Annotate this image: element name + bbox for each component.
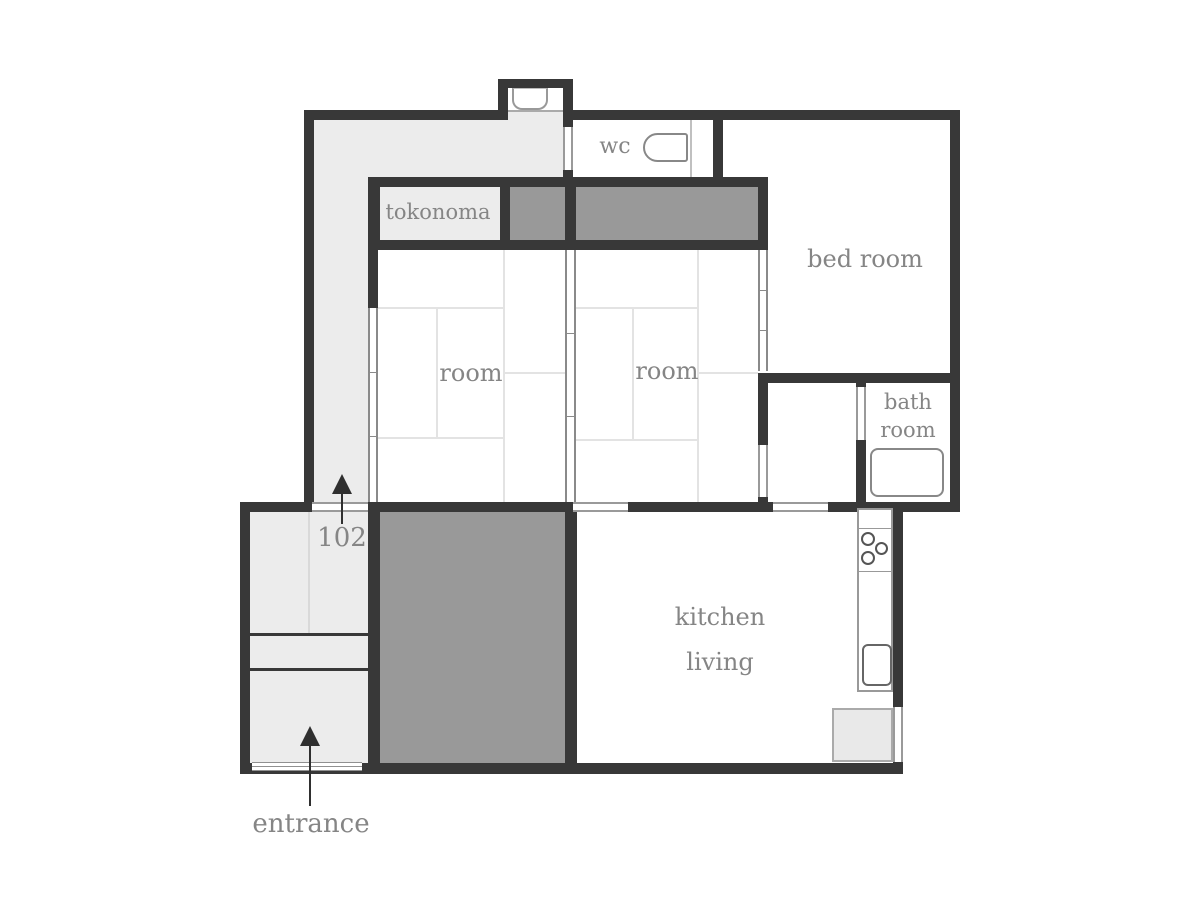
tatami-line: [378, 307, 505, 309]
fusuma-room-room: [565, 250, 576, 502]
bathroom-label-line1: bath: [858, 390, 958, 414]
floor-plan: tokonoma wc bed room room room bath room…: [0, 0, 1200, 900]
wall-top-left: [304, 110, 508, 120]
wall-storage-kitchen: [565, 502, 577, 774]
hallway-vertical-area: [314, 120, 368, 502]
bathroom-label-line2: room: [858, 418, 958, 442]
tokonoma-label: tokonoma: [378, 200, 498, 224]
room-right-label: room: [607, 357, 727, 385]
wall-top-right: [563, 110, 960, 120]
hallway-alcove-patch: [508, 110, 563, 120]
door-entrance-hall: [312, 502, 368, 512]
bathtub-icon: [870, 448, 944, 497]
wall-entrance-left: [240, 502, 250, 774]
door-room-kitchen: [573, 502, 628, 512]
wc-shelf-line: [690, 120, 692, 177]
wc-label: wc: [585, 134, 645, 159]
wall-outer-right: [950, 110, 960, 512]
unit-entry-arrow-icon: [332, 474, 352, 494]
entrance-label: entrance: [231, 809, 391, 839]
wall-tokonoma-closet: [500, 177, 510, 250]
kitchen-label-line1: kitchen: [640, 603, 800, 631]
stove-burner-icon: [875, 542, 888, 555]
room-left-label: room: [411, 359, 531, 387]
closet-small: [510, 187, 565, 240]
kitchen-label-line2: living: [640, 648, 800, 676]
counter-divider: [858, 571, 892, 572]
entrance-arrow-shaft: [309, 744, 311, 806]
closet-large: [576, 187, 758, 240]
fusuma-room-bedroom: [758, 250, 768, 371]
wall-closet-divider: [565, 177, 576, 250]
shoe-cabinet-line: [250, 668, 368, 671]
wall-bedroom-bottom: [758, 373, 960, 383]
washbasin-icon: [512, 88, 548, 110]
door-washroom-kitchen: [773, 502, 828, 512]
bedroom-label: bed room: [795, 245, 935, 273]
storage-area: [378, 512, 565, 763]
entrance-arrow-icon: [300, 726, 320, 746]
door-washroom-left: [758, 445, 768, 497]
door-wc: [563, 127, 573, 170]
entrance-sliding-door: [252, 762, 362, 771]
unit-entry-arrow-shaft: [341, 492, 343, 524]
refrigerator-space: [832, 708, 893, 762]
shoe-cabinet-line: [250, 633, 368, 636]
stove-burner-icon: [861, 551, 875, 565]
wall-alcove-top: [498, 79, 573, 88]
wall-middle-2: [368, 502, 573, 512]
wall-closet-right: [758, 177, 768, 250]
wall-wc-bedroom: [713, 110, 723, 187]
tatami-line: [378, 437, 505, 439]
toilet-icon: [643, 133, 688, 162]
wall-middle-1: [240, 502, 312, 512]
fusuma-hall-room: [368, 308, 378, 502]
tatami-line: [576, 307, 697, 309]
wall-alcove-left: [498, 79, 508, 115]
wall-outer-left: [304, 110, 314, 512]
counter-divider: [858, 528, 892, 529]
unit-number-label: 102: [302, 523, 382, 553]
door-kitchen-right: [893, 707, 903, 762]
tatami-line: [576, 439, 697, 441]
stove-burner-icon: [861, 532, 875, 546]
wall-hall-room-upper: [368, 250, 378, 308]
kitchen-sink-icon: [862, 644, 892, 686]
wall-middle-3: [628, 502, 773, 512]
